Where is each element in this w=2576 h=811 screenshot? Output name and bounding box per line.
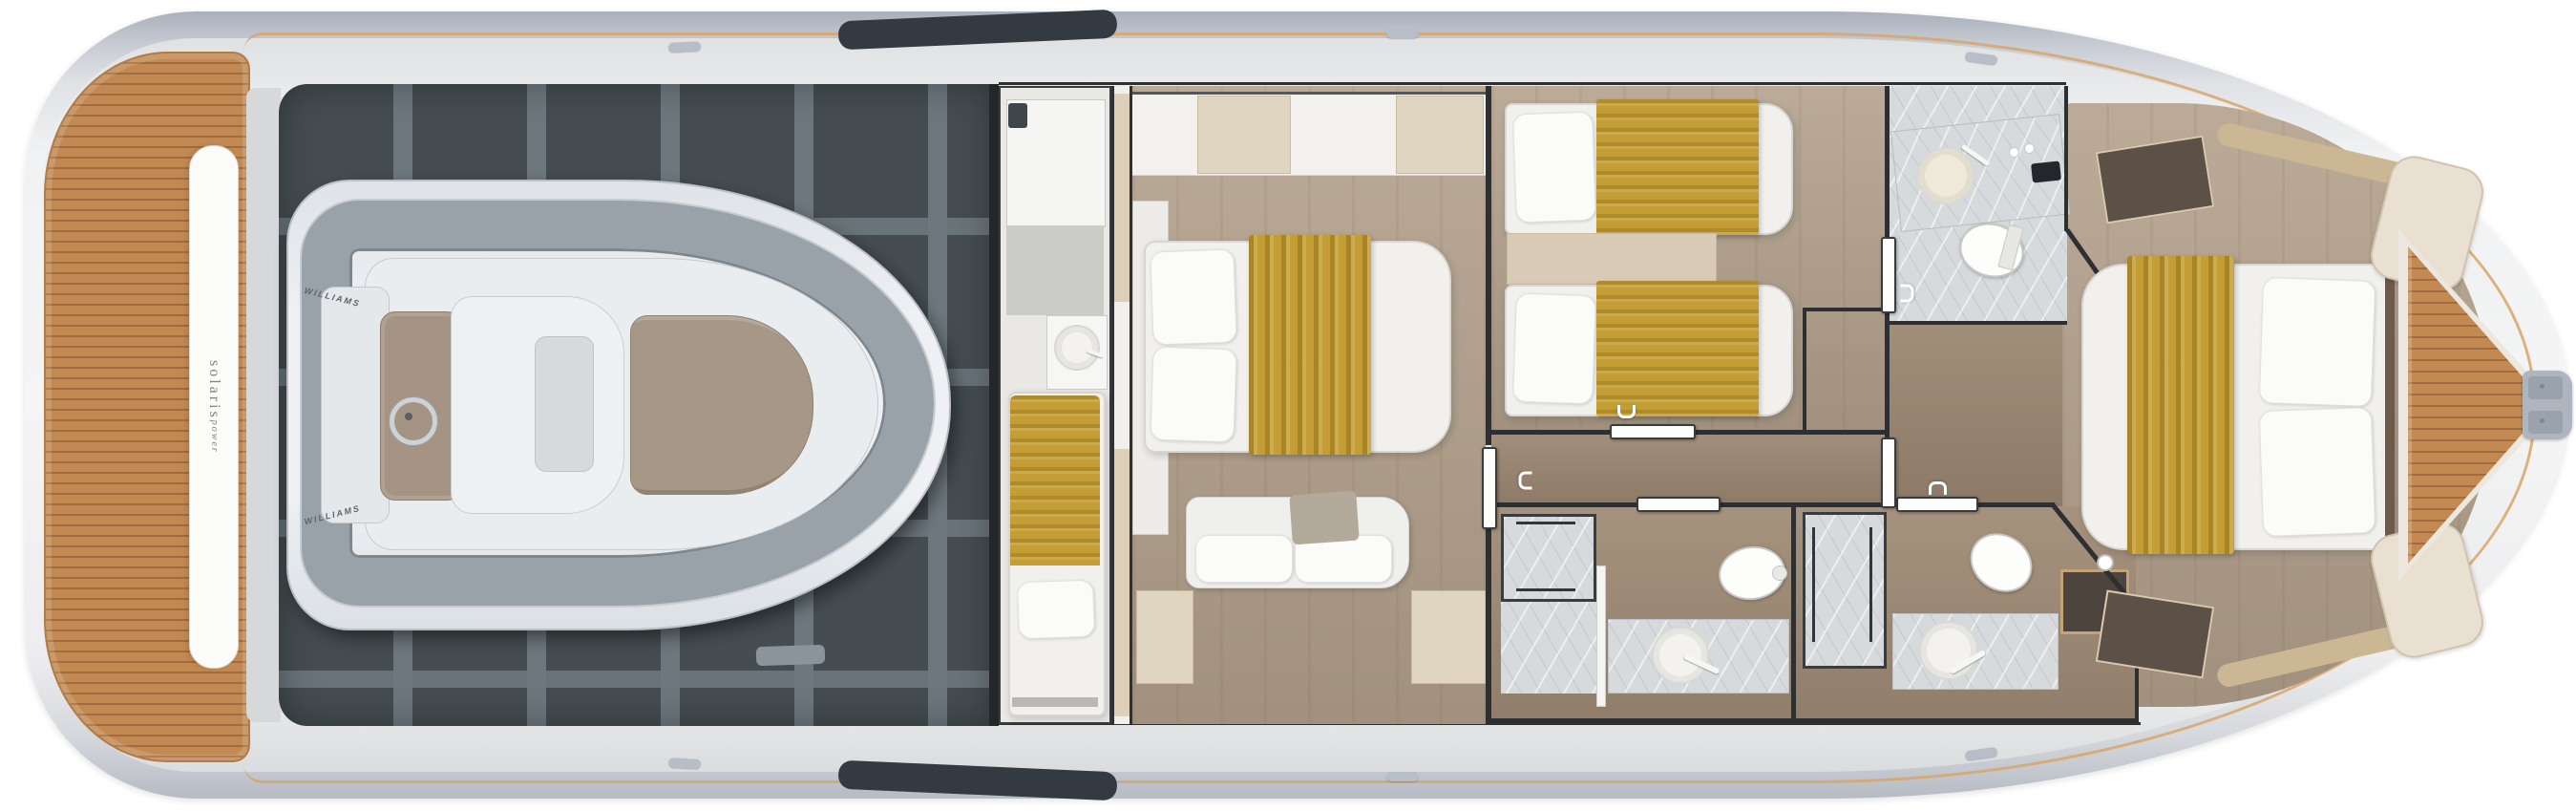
twin-cabin-nook-wall-v [1803, 308, 1806, 434]
master-bathroom-basin [1919, 621, 1978, 680]
midship-top-cabinet [1396, 96, 1484, 174]
diagonal-glass-dot [2097, 554, 2114, 571]
brand-power: power [209, 420, 220, 454]
master-bathroom-shower [1803, 512, 1887, 669]
bow-fitting-pad [2528, 411, 2563, 434]
day-head-bottom-wall [1890, 321, 2067, 325]
bow-bed-pillow [2259, 407, 2376, 537]
caprail-joint [1386, 772, 1419, 781]
tender-wheel-hub [405, 413, 412, 420]
tender-console-dash [535, 336, 594, 472]
day-head-sink-basin [1917, 147, 1974, 204]
master-shower-glass-line [1812, 527, 1815, 642]
central-wall-upper [1885, 86, 1890, 237]
day-head-tap-dot [2024, 143, 2035, 154]
midship-bottom-cabinet [1136, 590, 1193, 684]
engine-room-bulkhead [989, 84, 999, 726]
twin-bathroom-flush-dot [1772, 566, 1787, 581]
bathrooms-bottom-wall [1491, 718, 2139, 722]
crew-cabinet-handle [1008, 103, 1027, 128]
midship-bottom-cabinet [1411, 590, 1486, 684]
twin-bed-1-blanket [1596, 99, 1759, 235]
midship-top-cabinet [1197, 96, 1291, 174]
bathrooms-top-wall-a [1491, 502, 1638, 507]
wardrobe-column-lower [1114, 449, 1130, 716]
twin-cabin-nook-wall-h [1803, 308, 1887, 311]
twin-bed-1-pillow [1512, 112, 1596, 224]
midship-bed-pillow [1150, 346, 1236, 442]
twin-cabin-bottom-wall-b [1692, 430, 1887, 435]
wardrobe-column-upper [1114, 94, 1130, 302]
tender-bow-sunpad [630, 315, 813, 495]
caprail-joint [668, 41, 701, 53]
midship-bed-pillow [1150, 248, 1236, 345]
garage-bracket [756, 645, 826, 667]
midship-sofa-throw [1289, 491, 1359, 545]
transom-step [246, 88, 281, 722]
corridor-aft [1491, 435, 1885, 506]
bow-fitting-pad [2528, 376, 2563, 399]
twin-shower-glass-line [1516, 522, 1575, 524]
crew-bed-base [1012, 697, 1098, 707]
twin-nightstand [1507, 233, 1717, 285]
crew-sink-basin [1054, 325, 1100, 371]
bathrooms-top-wall-c [1973, 502, 2055, 507]
bow-headboard [2385, 271, 2395, 539]
twin-bed-2-pillow [1512, 293, 1596, 405]
master-shower-glass-line [1869, 527, 1872, 642]
corridor-door [1881, 438, 1896, 508]
midship-sofa-pillow [1195, 535, 1293, 583]
door-handle-icon [1519, 472, 1532, 490]
twin-bed-2-blanket [1596, 281, 1759, 416]
twin-cabin-bottom-wall-a [1491, 430, 1612, 435]
crew-locker [1006, 225, 1104, 315]
day-head-control-panel [2031, 160, 2061, 182]
corridor-forward [1890, 321, 2071, 506]
bathroom-divider-wall [1791, 506, 1796, 722]
day-head-right-wall [2064, 86, 2068, 231]
door-handle-icon [1617, 405, 1636, 418]
bathrooms-top-wall-b [1717, 502, 1896, 507]
transom-arc: solarispower [189, 145, 239, 669]
caprail-joint [668, 758, 701, 769]
midship-bed-throw [1249, 235, 1371, 455]
midship-cabin-door [1482, 447, 1497, 529]
day-head-tap-dot [2009, 147, 2019, 158]
bow-bed-pillow [2259, 277, 2376, 407]
master-bathroom-door [1896, 497, 1978, 512]
twin-shower-glass-line [1516, 588, 1575, 591]
twin-bathroom-door [1636, 497, 1721, 512]
central-wall-mid [1885, 309, 1890, 438]
yacht-lower-deck-floorplan: solarispower WILLIAMS WILLIAMS [0, 0, 2576, 811]
day-head-door [1881, 237, 1896, 313]
bow-bed-throw [2127, 256, 2234, 554]
tender-steering-wheel-icon [390, 397, 437, 445]
master-aft-wall-upper [1486, 86, 1491, 445]
cabins-top-wall [999, 82, 2066, 85]
twin-bathroom-shower-floor [1501, 602, 1596, 694]
bow-fitting-bolt [2540, 418, 2544, 423]
crew-bed-blanket [1010, 395, 1100, 566]
twin-bathroom-basin [1652, 627, 1709, 684]
master-aft-wall-lower [1486, 527, 1491, 724]
brand-transom-text: solarispower [206, 360, 222, 454]
bow-fitting-bolt [2540, 384, 2544, 389]
twin-cabin-door [1610, 424, 1696, 439]
crew-bed-pillow [1017, 580, 1095, 640]
door-handle-icon [1901, 285, 1914, 303]
twin-bathroom-partition [1596, 566, 1606, 707]
door-handle-icon [1929, 481, 1947, 495]
caprail-joint [1386, 29, 1419, 38]
brand-solaris: solaris [206, 360, 222, 420]
